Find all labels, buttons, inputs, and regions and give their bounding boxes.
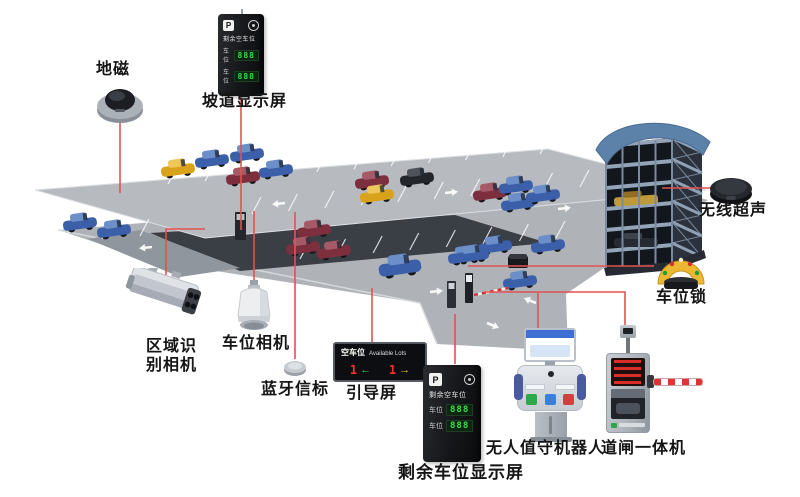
- ramp-display-device: P 剩余空车位 车位 888 车位 888: [218, 14, 264, 96]
- parking-lock-label: 车位锁: [656, 288, 707, 307]
- unattended-robot-label: 无人值守机器人: [486, 439, 605, 458]
- call-icon: [526, 394, 537, 405]
- parking-p-logo: P: [223, 20, 234, 31]
- geomagnetic-sensor-icon: [94, 84, 146, 124]
- antenna-stub: [241, 9, 243, 14]
- row-label: 车位: [429, 405, 443, 415]
- remaining-display-label: 剩余车位显示屏: [398, 463, 524, 482]
- barrier-arm: [653, 378, 703, 386]
- space-camera-label: 车位相机: [222, 334, 290, 353]
- led-count: 888: [234, 71, 259, 82]
- guidance-title-en: Available Lots: [369, 351, 406, 357]
- row-label: 车位: [223, 46, 231, 64]
- led-count: 888: [446, 420, 473, 432]
- alert-icon: [563, 394, 574, 405]
- robot-camera-icon: [548, 371, 554, 377]
- barrier-gate-label: 道闸一体机: [601, 439, 686, 458]
- right-arrow-icon: →: [399, 365, 410, 375]
- row-label: 车位: [429, 421, 443, 431]
- geomagnetic-label: 地磁: [96, 60, 130, 79]
- bluetooth-beacon-icon: [282, 358, 308, 378]
- info-icon: [545, 394, 556, 405]
- robot-side-panel: [514, 374, 523, 400]
- left-arrow-icon: ←: [360, 365, 371, 375]
- area-recognition-camera-icon: [124, 268, 212, 342]
- status-light: [611, 423, 617, 428]
- ticket-slot: [555, 384, 575, 390]
- wireless-ultrasonic-label: 无线超声: [699, 201, 767, 220]
- gate-cabinet: [606, 353, 650, 433]
- robot-screen: [524, 328, 576, 362]
- guidance-screen-label: 引导屏: [346, 384, 397, 403]
- brand-icon: [464, 374, 475, 385]
- area-camera-label-line2: 别相机: [146, 356, 197, 375]
- unattended-robot-device: [514, 328, 586, 442]
- guidance-title-cn: 空车位: [341, 347, 365, 358]
- robot-side-panel: [577, 374, 586, 400]
- bluetooth-beacon-label: 蓝牙信标: [261, 380, 329, 399]
- card-slot: [525, 384, 545, 390]
- robot-pedestal: [535, 412, 567, 438]
- led-count: 888: [446, 404, 473, 416]
- barrier-gate-device: [598, 325, 708, 437]
- pillar-title: 剩余空车位: [429, 390, 475, 400]
- left-available-count: 1: [350, 363, 357, 377]
- robot-body: [517, 365, 583, 411]
- parking-p-logo: P: [429, 373, 442, 386]
- smart-parking-system-diagram: 地磁 坡道显示屏 区域识 别相机 车位相机 蓝牙信标 引导屏 无线超声 车位锁 …: [0, 0, 800, 497]
- row-label: 车位: [223, 67, 231, 85]
- gate-plate-screen: [611, 389, 645, 419]
- area-camera-label: 区域识 别相机: [146, 337, 197, 375]
- parking-lock-icon: [650, 242, 712, 292]
- gate-led-display: [611, 358, 645, 386]
- gate-camera-icon: [620, 325, 636, 338]
- remaining-display-device: P 剩余空车位 车位 888 车位 888: [423, 365, 481, 462]
- pillar-title: 剩余空车位: [223, 34, 259, 43]
- guidance-screen-device: 空车位 Available Lots 1 ← 1 →: [333, 342, 427, 382]
- right-available-count: 1: [389, 363, 396, 377]
- ramp-display-label: 坡道显示屏: [202, 92, 287, 111]
- space-camera-icon: [234, 280, 274, 334]
- brand-icon: [248, 20, 259, 31]
- area-camera-label-line1: 区域识: [146, 337, 197, 356]
- led-count: 888: [234, 50, 259, 61]
